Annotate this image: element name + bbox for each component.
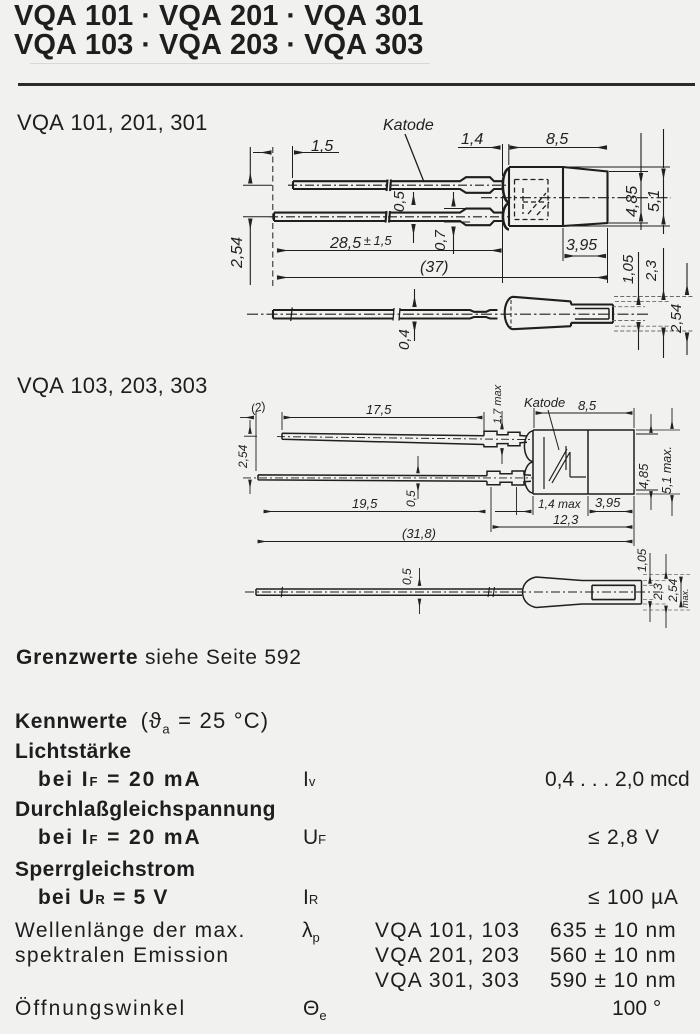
svg-text:1,5: 1,5 [311, 138, 333, 155]
svg-text:1,05: 1,05 [635, 548, 649, 572]
svg-text:2,54: 2,54 [236, 444, 250, 469]
svg-text:2,3: 2,3 [643, 259, 660, 282]
svg-text:2,54: 2,54 [666, 578, 680, 603]
svg-text:4,85: 4,85 [624, 186, 641, 217]
svg-text:8,5: 8,5 [546, 131, 568, 148]
svg-text:4,85: 4,85 [636, 463, 651, 489]
svg-text:1,4: 1,4 [461, 131, 483, 148]
svg-text:1,4 max: 1,4 max [538, 497, 582, 511]
svg-text:0,4: 0,4 [396, 329, 413, 350]
svg-text:1,05: 1,05 [620, 254, 637, 284]
svg-text:3,95: 3,95 [566, 237, 597, 254]
svg-text:28,5 ± 1,5: 28,5 ± 1,5 [329, 233, 392, 252]
svg-text:0,5: 0,5 [391, 190, 408, 212]
svg-text:max.: max. [680, 588, 690, 608]
svg-text:2,3: 2,3 [651, 583, 665, 601]
svg-text:5,1: 5,1 [646, 190, 663, 212]
svg-text:(31,8): (31,8) [402, 526, 436, 541]
svg-text:1,7 max: 1,7 max [492, 384, 504, 424]
svg-text:0,5: 0,5 [400, 568, 414, 585]
svg-text:8,5: 8,5 [578, 398, 597, 413]
svg-text:3,95: 3,95 [595, 495, 621, 510]
svg-text:Katode: Katode [383, 117, 434, 134]
svg-text:19,5: 19,5 [352, 496, 378, 511]
svg-text:2,54: 2,54 [229, 237, 246, 269]
svg-text:(37): (37) [420, 259, 448, 276]
svg-text:17,5: 17,5 [366, 402, 392, 417]
svg-text:12,3: 12,3 [553, 512, 579, 527]
svg-text:(2): (2) [249, 399, 267, 416]
svg-text:0,7: 0,7 [432, 229, 449, 251]
svg-text:0,5: 0,5 [404, 490, 418, 507]
svg-text:2,54: 2,54 [668, 304, 685, 334]
svg-text:5,1 max.: 5,1 max. [660, 446, 674, 494]
svg-text:Katode: Katode [524, 395, 565, 410]
